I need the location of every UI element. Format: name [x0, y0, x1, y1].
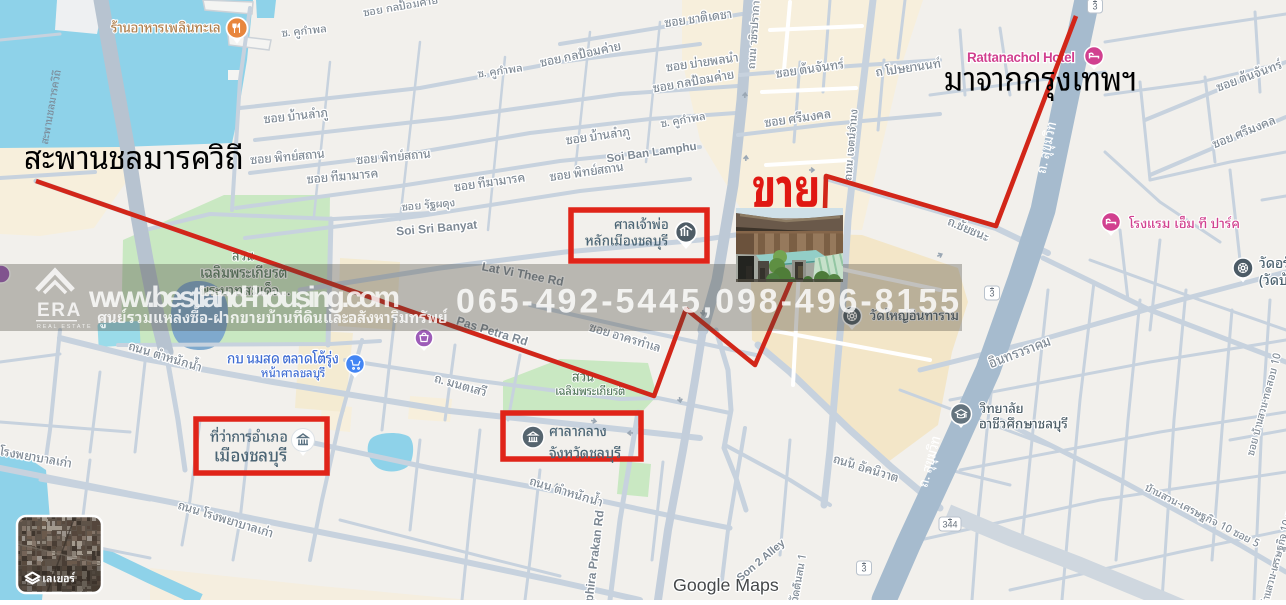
- svg-text:ERA: ERA: [37, 300, 82, 321]
- svg-text:3: 3: [989, 289, 994, 299]
- svg-text:Google Maps: Google Maps: [673, 575, 779, 595]
- svg-text:3: 3: [861, 564, 866, 574]
- svg-text:3: 3: [1092, 2, 1097, 12]
- svg-text:344: 344: [942, 520, 957, 530]
- svg-text:065-492-5445,098-496-8155: 065-492-5445,098-496-8155: [456, 283, 959, 321]
- svg-text:www.bestland-housing.com: www.bestland-housing.com: [88, 281, 400, 314]
- svg-text:REAL ESTATE: REAL ESTATE: [37, 324, 92, 330]
